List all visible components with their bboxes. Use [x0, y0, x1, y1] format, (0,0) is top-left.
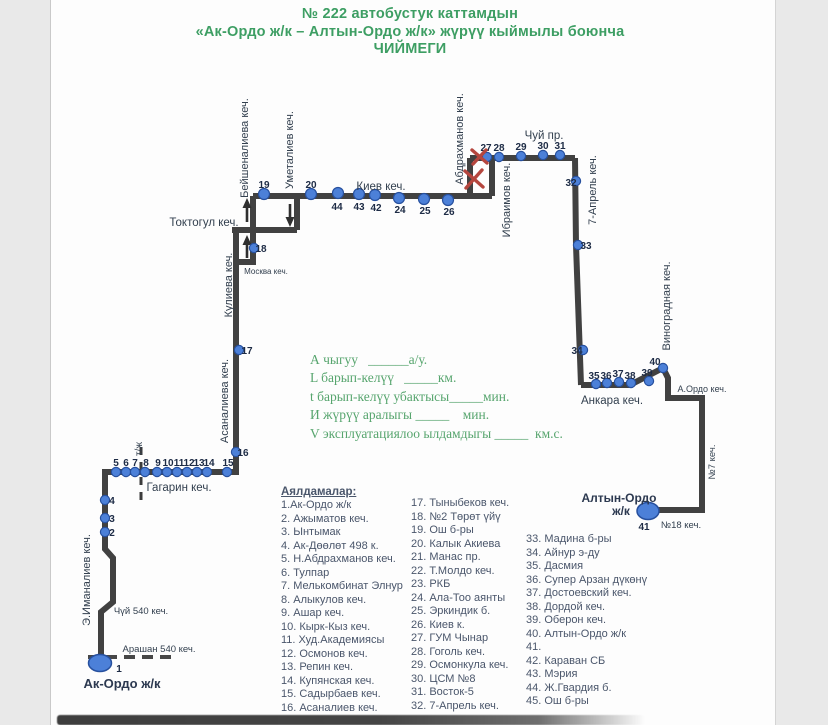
stop-list-item: 16. Асаналиев кеч.: [281, 702, 403, 716]
form-line: А чыгуу ______а/у.: [310, 351, 563, 369]
stop-number-17: 17: [241, 346, 253, 357]
stop-number-3: 3: [109, 514, 115, 525]
route-parameters-form: А чыгуу ______а/у.L барып-келүү _____км.…: [310, 351, 563, 443]
stop-list-item: 18. №2 Төрөт үйү: [411, 511, 509, 525]
stop-list-item: 5. Н.Абдрахманов кеч.: [281, 553, 403, 567]
stop-list-item: 40. Алтын-Ордо ж/к: [526, 628, 647, 642]
stop-number-9: 9: [155, 458, 161, 469]
stop-number-8: 8: [143, 458, 149, 469]
terminal-ak-ordo: [89, 655, 112, 672]
stop-list-item: 22. Т.Молдо кеч.: [411, 565, 509, 579]
street-label: №18 кеч.: [661, 520, 701, 531]
stop-list-item: 29. Осмонкула кеч.: [411, 659, 509, 673]
street-label: 7-Апрель кеч.: [587, 155, 599, 225]
photo-edge-shadow: [57, 715, 645, 725]
stop-dot-25: [419, 194, 430, 205]
terminal-altyn-ordo-number: 41: [638, 522, 650, 533]
street-label: Арашан 540 кеч.: [122, 644, 195, 655]
street-label: Москва кеч.: [244, 267, 288, 276]
stop-number-16: 16: [237, 448, 249, 459]
stop-number-33: 33: [580, 241, 592, 252]
stop-dot-44: [333, 188, 344, 199]
stop-list-column-1: 1.Ак-Ордо ж/к2. Ажыматов кеч.3. Ынтымак4…: [281, 499, 403, 715]
stop-dot-4: [100, 495, 109, 504]
stop-number-38: 38: [624, 371, 636, 382]
stop-list-header: Аялдамалар:: [281, 486, 356, 498]
street-label: А.Ордо кеч.: [678, 384, 727, 394]
stop-number-37: 37: [612, 369, 624, 380]
stop-number-15: 15: [222, 458, 234, 469]
stop-number-6: 6: [123, 458, 129, 469]
stop-number-18: 18: [255, 244, 267, 255]
stop-list-item: 17. Тыныбеков кеч.: [411, 497, 509, 511]
stop-list-item: 32. 7-Апрель кеч.: [411, 700, 509, 714]
stop-list-item: 26. Киев к.: [411, 619, 509, 633]
terminal-ak-ordo-label: Ак-Ордо ж/к: [83, 676, 161, 691]
stop-number-39: 39: [641, 368, 653, 379]
terminal-altyn-ordo-label2: ж/к: [611, 504, 631, 518]
stop-list-item: 28. Гоголь кеч.: [411, 646, 509, 660]
stop-number-35: 35: [588, 371, 600, 382]
form-line: И жүрүү аралыгы _____ мин.: [310, 406, 563, 424]
stop-number-5: 5: [113, 458, 119, 469]
street-label: Чүй 540 кеч.: [114, 606, 168, 617]
stop-list-item: 44. Ж.Гвардия б.: [526, 682, 647, 696]
stops-layer: 2345678910111213141516171819204443422425…: [100, 141, 667, 539]
stop-list-item: 12. Осмонов кеч.: [281, 648, 403, 662]
stop-list-item: 30. ЦСМ №8: [411, 673, 509, 687]
screenshot-root: № 222 автобустук каттамдын «Ак-Ордо ж/к …: [0, 0, 828, 725]
stop-dot-26: [443, 195, 454, 206]
street-label: Ибраимов кеч.: [501, 163, 513, 238]
stop-list-item: 23. РКБ: [411, 578, 509, 592]
stop-list-item: 45. Ош б-ры: [526, 695, 647, 709]
terminal-altyn-ordo-label: Алтын-Ордо: [582, 491, 657, 505]
stop-list-item: 39. Оберон кеч.: [526, 614, 647, 628]
street-label: Чуй пр.: [525, 130, 564, 142]
stop-number-4: 4: [109, 496, 115, 507]
stop-list-item: 36. Супер Арзан дүкөнү: [526, 574, 647, 588]
stop-list-item: 27. ГУМ Чынар: [411, 632, 509, 646]
stop-list-item: 35. Дасмия: [526, 560, 647, 574]
stop-list-item: 2. Ажыматов кеч.: [281, 513, 403, 527]
stop-number-43: 43: [353, 202, 365, 213]
stop-list-item: 1.Ак-Ордо ж/к: [281, 499, 403, 513]
stop-number-31: 31: [554, 141, 566, 152]
route-segment-south: [101, 230, 236, 662]
stop-list-column-2: 17. Тыныбеков кеч.18. №2 Төрөт үйү19. Ош…: [411, 497, 509, 713]
stop-dot-24: [394, 193, 405, 204]
stop-list-item: 19. Ош б-ры: [411, 524, 509, 538]
stop-list-item: 38. Дордой кеч.: [526, 601, 647, 615]
stop-list-item: 3. Ынтымак: [281, 526, 403, 540]
stop-list-column-3: 33. Мадина б-ры34. Айнур э-ду35. Дасмия3…: [526, 533, 647, 709]
stop-number-25: 25: [419, 206, 431, 217]
stop-number-7: 7: [132, 458, 138, 469]
stop-dot-3: [100, 513, 109, 522]
stop-number-14: 14: [203, 458, 215, 469]
direction-arrow-down-icon: [286, 204, 295, 227]
stop-number-2: 2: [109, 528, 115, 539]
stop-number-30: 30: [537, 141, 549, 152]
stop-list-item: 7. Мелькомбинат Элнур: [281, 580, 403, 594]
stop-number-19: 19: [258, 180, 270, 191]
stop-number-26: 26: [443, 207, 455, 218]
form-line: L барып-келүү _____км.: [310, 369, 563, 387]
stop-list-item: 13. Репин кеч.: [281, 661, 403, 675]
stop-list-item: 43. Мэрия: [526, 668, 647, 682]
stop-list-item: 42. Караван СБ: [526, 655, 647, 669]
street-label: т/ж: [134, 442, 145, 456]
stop-list-item: 34. Айнур э-ду: [526, 547, 647, 561]
street-label: №7 кеч.: [707, 445, 718, 480]
stop-list-item: 4. Ак-Дөөлөт 498 к.: [281, 540, 403, 554]
street-label: Кулиева кеч.: [223, 253, 235, 318]
form-line: V эксплуатациялоо ылдамдыгы _____ км.с.: [310, 425, 563, 443]
stop-number-44: 44: [331, 202, 343, 213]
stop-number-10: 10: [162, 458, 174, 469]
street-label: Токтогул кеч.: [169, 217, 238, 229]
street-label: Киев кеч.: [356, 181, 405, 193]
street-label: Э.Иманалиев кеч.: [81, 534, 93, 626]
street-label: Гагарин кеч.: [146, 482, 211, 494]
stop-list-item: 11. Худ.Академиясы: [281, 634, 403, 648]
stop-number-20: 20: [305, 180, 317, 191]
stop-number-42: 42: [370, 203, 382, 214]
stop-list-item: 37. Достоевский кеч.: [526, 587, 647, 601]
stop-dot-2: [100, 527, 109, 536]
stop-list-item: 14. Купянская кеч.: [281, 675, 403, 689]
street-label: Виноградная кеч.: [661, 261, 673, 350]
stop-list-item: 24. Ала-Тоо аянты: [411, 592, 509, 606]
stop-list-item: 41.: [526, 641, 647, 655]
stop-number-32: 32: [565, 178, 577, 189]
street-label: Бейшеналиева кеч.: [239, 98, 251, 198]
terminal-ak-ordo-number: 1: [116, 664, 122, 675]
street-label: Асаналиева кеч.: [219, 359, 231, 443]
stop-list-item: 21. Манас пр.: [411, 551, 509, 565]
stop-list-item: 33. Мадина б-ры: [526, 533, 647, 547]
stop-list-item: 31. Восток-5: [411, 686, 509, 700]
stop-number-28: 28: [493, 143, 505, 154]
stop-number-36: 36: [600, 371, 612, 382]
stop-number-24: 24: [394, 205, 406, 216]
stop-list-item: 8. Алыкулов кеч.: [281, 594, 403, 608]
stop-list-item: 9. Ашар кеч.: [281, 607, 403, 621]
stop-list-item: 20. Калык Акиева: [411, 538, 509, 552]
stop-list-item: 6. Тулпар: [281, 567, 403, 581]
form-line: t барып-келүү убактысы_____мин.: [310, 388, 563, 406]
street-label: Уметалиев кеч.: [284, 111, 296, 189]
street-label: Анкара кеч.: [581, 395, 643, 407]
stop-number-34: 34: [571, 346, 583, 357]
terminal-altyn-ordo: [637, 503, 659, 520]
stop-list-item: 25. Эркиндик б.: [411, 605, 509, 619]
stop-list-item: 15. Садырбаев кеч.: [281, 688, 403, 702]
stop-number-29: 29: [515, 142, 527, 153]
stop-list-item: 10. Кырк-Кыз кеч.: [281, 621, 403, 635]
stop-number-40: 40: [649, 357, 661, 368]
